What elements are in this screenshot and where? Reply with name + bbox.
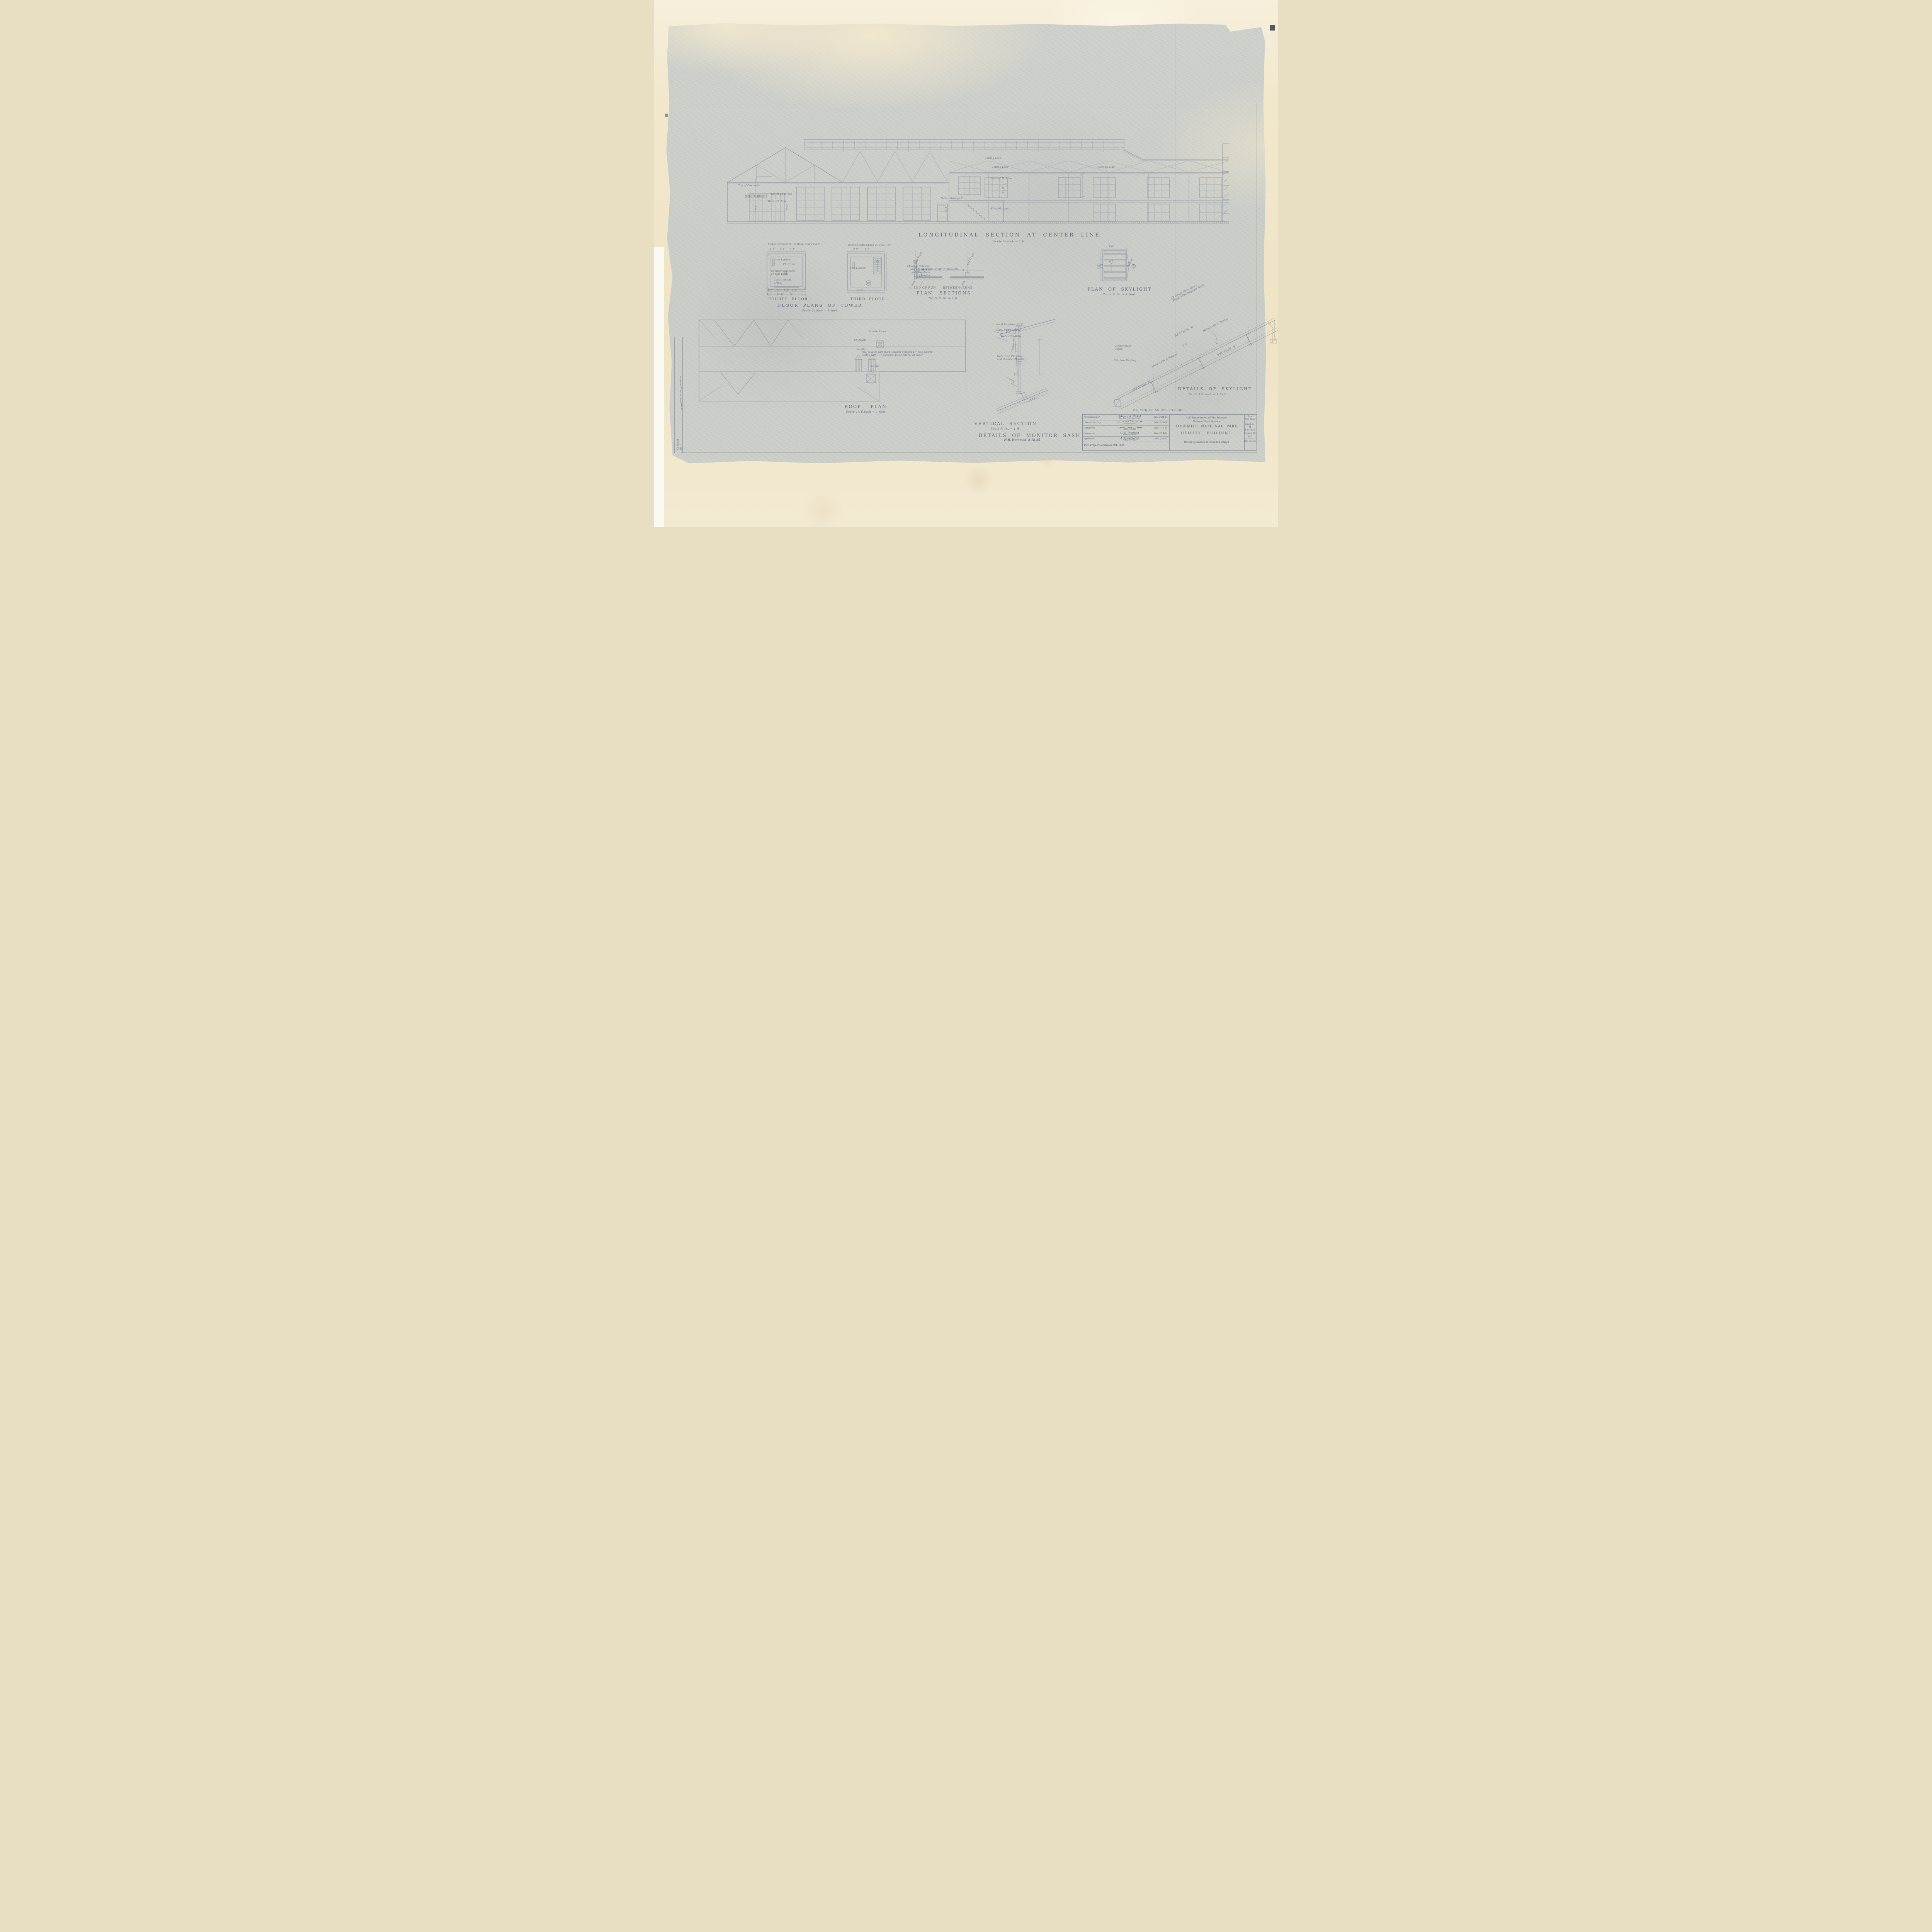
dim-10-6: 10'-6" <box>945 206 947 213</box>
label-iron-ladder-4: Iron Ladder <box>775 258 791 261</box>
label-skylights: Skylights <box>854 338 867 342</box>
approval-action: Concurred <box>1084 427 1095 429</box>
dim-third-bottom: 17'-6" <box>857 289 864 292</box>
tower-plans-title: FLOOR PLANS OF TOWER <box>755 303 886 308</box>
sheet-of: of 33 Sheets <box>1244 429 1257 431</box>
dims-third-top: 8'-9" 8'-9" <box>854 248 870 250</box>
note-attic-door: Door to Attic Space 2'-6"x3'-10" <box>848 243 891 247</box>
label-saddle-2: Saddle <box>871 365 880 368</box>
skylight-plan-title: PLAN OF SKYLIGHT <box>1087 287 1153 292</box>
skylight-details-scale: Scale 1½ inch = 1 foot <box>1189 393 1226 396</box>
dim-15-2: 15'-2" <box>755 205 758 212</box>
label-ceiling-line-3: Ceiling Line <box>1099 165 1115 168</box>
drawing-prefix: N.P. <box>1244 435 1257 437</box>
vertical-section-title: VERTICAL SECTION <box>959 421 1052 426</box>
label-skylight-flashing: Galv. Iron Flashing <box>1114 359 1136 362</box>
approval-action: Approved <box>1084 438 1094 440</box>
approval-date: Date 5-25-34 <box>1153 416 1167 418</box>
agency-line-2: National Park Service <box>1169 420 1244 423</box>
vertical-section-scale: Scale ¾ in. = 1 ft. <box>959 427 1052 430</box>
approval-date: Date 7-17-34 <box>1153 427 1167 429</box>
fold-crease <box>1175 24 1176 410</box>
approval-date: Date 7/21/34 <box>1153 438 1167 440</box>
drawn-by-line: Drawn By Branch of Plans and Design <box>1169 441 1244 444</box>
margin-signature-squiggle <box>679 376 683 410</box>
checked-by-label: Checked By <box>677 439 683 450</box>
approval-row-concurred-1: Concurred Chief Forester Date 7-17-34 <box>1083 425 1169 431</box>
signature-squiggle <box>1116 426 1143 429</box>
approval-role: Acting Director <box>1107 439 1153 441</box>
label-wood-blocking: Wood Blocking 12"C. <box>996 323 1024 326</box>
date-value: Nov. 18/33 <box>1244 418 1257 420</box>
label-between-runs: BETWEEN RUNS <box>943 286 973 289</box>
corner-mark <box>1270 25 1275 31</box>
long-section-scale: Scale ½ inch = 1 ft. <box>901 240 1118 243</box>
approval-action: Recommended <box>1084 416 1100 418</box>
fold-crease <box>966 25 966 464</box>
approval-role: Superintendent <box>1107 434 1153 436</box>
note-roof-covering: Roof covered with Rigid Asbestos Shingle… <box>862 351 934 357</box>
date-label: Date <box>1244 415 1257 418</box>
approval-action: Cleared for Eng. <box>1084 422 1102 424</box>
signature-squiggle <box>1116 420 1143 423</box>
label-ceiling-line-1: Ceiling Line <box>985 156 1001 160</box>
plan-sections-title: PLAN SECTIONS <box>898 291 990 296</box>
dim-12-6: 12'-6" <box>786 204 789 211</box>
dims-fourth-bottom-1: 4'-7" 3'-3" 3'-3" 4'-7" <box>768 289 798 292</box>
drawing-label: Drawing No. <box>1244 432 1257 435</box>
agency-line-1: U.S. Department of The Interior <box>1169 416 1244 419</box>
label-condensation-gutter: Condensation Gutter <box>1115 345 1131 351</box>
skylight-plan-scale: Scale ½ in. = 1 foot. <box>1087 293 1153 296</box>
long-section-title: LONGITUDINAL SECTION AT CENTER LINE <box>901 232 1118 238</box>
section-marker-d: D <box>1111 260 1112 263</box>
label-iron-drip: Galv. Iron Drip <box>1001 335 1021 338</box>
approval-row-cleared: Cleared for Eng. Chief Engineer Date 5-2… <box>1083 420 1169 426</box>
drawing-number-cell: Drawing No. N.P. <box>1244 432 1257 439</box>
label-floor-drain: Fl. Drain <box>783 263 795 266</box>
dim-13-6: 13'-6" <box>1002 186 1005 193</box>
note-cast-cement-grills: Cast Cement Grills. <box>774 278 791 285</box>
label-top-of-concrete-2: Top of Concrete <box>771 192 792 196</box>
approval-role: For The Chief Architect <box>1107 418 1153 420</box>
edge-mark <box>665 114 668 117</box>
section-marker-c: C <box>1100 264 1102 267</box>
label-mezz-storage: Mezz. Storage Fl. <box>941 197 965 200</box>
approval-row-recommended: Recommended Edward A. Nickel For The Chi… <box>1083 415 1169 420</box>
park-name: YOSEMITE NATIONAL PARK <box>1169 425 1244 429</box>
draftsman-signature: H.B. Hommon 5-18-34 <box>1004 438 1040 442</box>
label-ceiling-line-2: Ceiling Line <box>992 165 1008 168</box>
label-third-floor: THIRD FLOOR <box>850 298 885 301</box>
label-second-floor-line: Second Fl. Line <box>991 177 1012 180</box>
drawing-value: YOS 3012 M. <box>1244 440 1257 442</box>
note-roof-door: Metal Covered Dr. to Roof. 2'-6"x3'-10" <box>768 243 821 246</box>
sheet-number-cell: Sheet No. 6 of 33 Sheets <box>1244 423 1257 432</box>
dims-fourth-top: 6'-8" 2'-4" 6'-8" <box>770 248 795 250</box>
label-iron-ladder-3: Iron Ladder <box>850 267 866 270</box>
roof-plan-drawing <box>697 314 968 403</box>
approval-action: Concurred <box>1084 432 1095 435</box>
sheet-number: 6 <box>1244 425 1257 429</box>
label-motor-platform: Motor Platform <box>744 194 767 198</box>
roof-plan-title: ROOF PLAN <box>808 404 924 409</box>
title-block: Recommended Edward A. Nickel For The Chi… <box>1082 414 1257 451</box>
date-cell: Date Nov. 18/33 <box>1244 415 1257 423</box>
dims-fourth-bottom-2: 11" 15'-8" 11" <box>767 293 794 296</box>
dim-window-2: Window Dim. <box>944 268 959 270</box>
detail-badge-20: 20 <box>866 281 871 286</box>
longitudinal-section-drawing <box>727 136 1229 229</box>
dim-skylight-left: 5'-6" <box>1097 264 1100 269</box>
dim-skylight-top: 5'-6" <box>1109 245 1114 248</box>
section-marker-e: E <box>1133 264 1134 267</box>
label-end-of-run: END OF RUN <box>914 286 936 289</box>
skylight-details-title: DETAILS OF SKYLIGHT <box>1178 386 1252 391</box>
dim-mullion-12: 12" <box>939 268 942 270</box>
label-flashing-counter: Galv. Iron Flashing and Counter-Flashing <box>997 355 1027 361</box>
plan-sections-scale: Scale ¾ in. = 1 ft. <box>898 296 990 300</box>
tower-plans-scale: Scale ⅛ inch = 1 foot. <box>755 309 886 312</box>
label-first-floor-line: First Fl. Line <box>991 207 1009 210</box>
margin-check-box: Checked By <box>674 337 683 453</box>
pwa-completed-note: PWA Project Completed Oct. 1935 <box>1084 444 1124 447</box>
blueprint-sheet: Top of Concrete Motor Platform Top of Co… <box>654 0 1278 527</box>
approval-date: Date 5/14/34 <box>1153 432 1167 435</box>
note-composition-roof: Composition Roof on this Deck <box>771 269 795 276</box>
label-top-of-concrete-1: Top of Concrete <box>738 184 760 187</box>
approval-date: Date 5-26-34 <box>1153 422 1167 424</box>
backing-paper <box>654 247 664 527</box>
agency-panel: U.S. Department of The Interior National… <box>1169 415 1244 450</box>
label-mezz-floor-line: Mezz. Fl. Line <box>768 200 787 203</box>
skylight-plan-drawing <box>1100 248 1136 287</box>
approval-row-approved: Approved A. E. Demaray Acting Director D… <box>1083 436 1169 442</box>
monitor-sash-title: DETAILS OF MONITOR SASH <box>979 433 1081 438</box>
label-fourth-floor: FOURTH FLOOR <box>769 298 808 301</box>
roof-plan-scale: Scale 1/16 inch = 1 foot <box>808 410 924 413</box>
label-smoke-stack: Smoke Stack <box>869 330 886 333</box>
note-galv-iron-monitor: 24 Gauge Galv. Iron covering on ends and… <box>903 265 930 277</box>
sheet-info-panel: Date Nov. 18/33 Sheet No. 6 of 33 Sheets… <box>1244 415 1257 450</box>
sheet-title: UTILITY BUILDING <box>1169 432 1244 435</box>
approval-row-concurred-2: Concurred C. G. Thomson Superintendent D… <box>1083 431 1169 437</box>
project-number-line: P.W. PROJ. F.P. NO. 303 PHYS. IMP. <box>1133 409 1184 412</box>
